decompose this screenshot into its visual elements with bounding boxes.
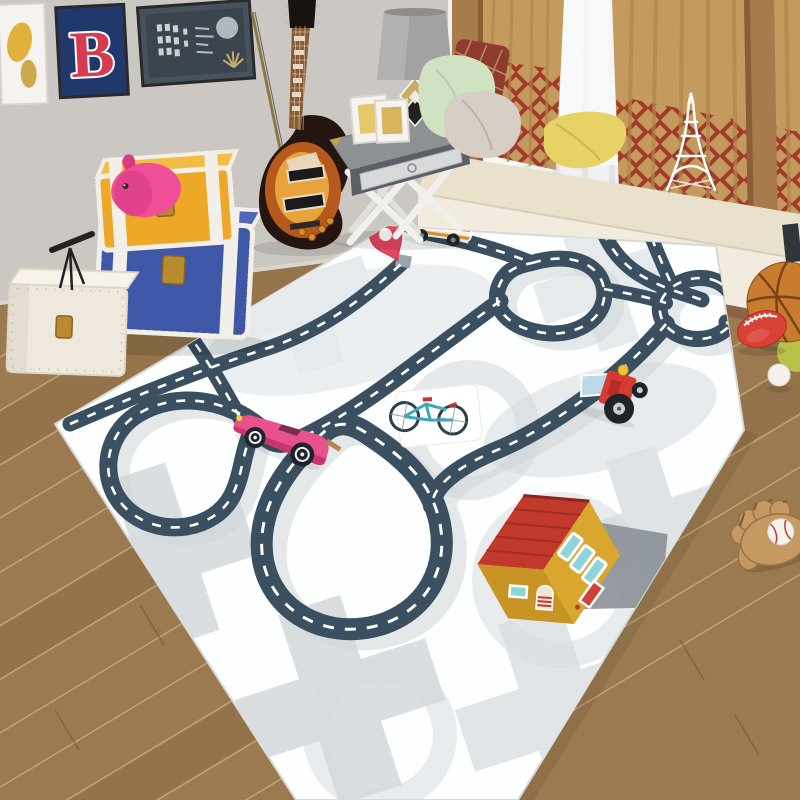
- frame-art: [381, 106, 402, 134]
- kids-room-product-photo: B: [0, 0, 800, 800]
- poster-letter: B: [68, 17, 116, 92]
- white-ball: [768, 364, 790, 386]
- house-arch-door: [536, 585, 554, 610]
- poster-abstract: [0, 3, 48, 105]
- guitar-headstock: [288, 0, 316, 28]
- poster-letter-b: B: [56, 4, 129, 97]
- bike-seat: [423, 398, 432, 402]
- picture-frames: [350, 95, 409, 144]
- poster-photo: [137, 0, 254, 86]
- house-small-window: [509, 585, 527, 597]
- trunk-latch: [162, 255, 185, 284]
- trunk-latch: [56, 316, 73, 339]
